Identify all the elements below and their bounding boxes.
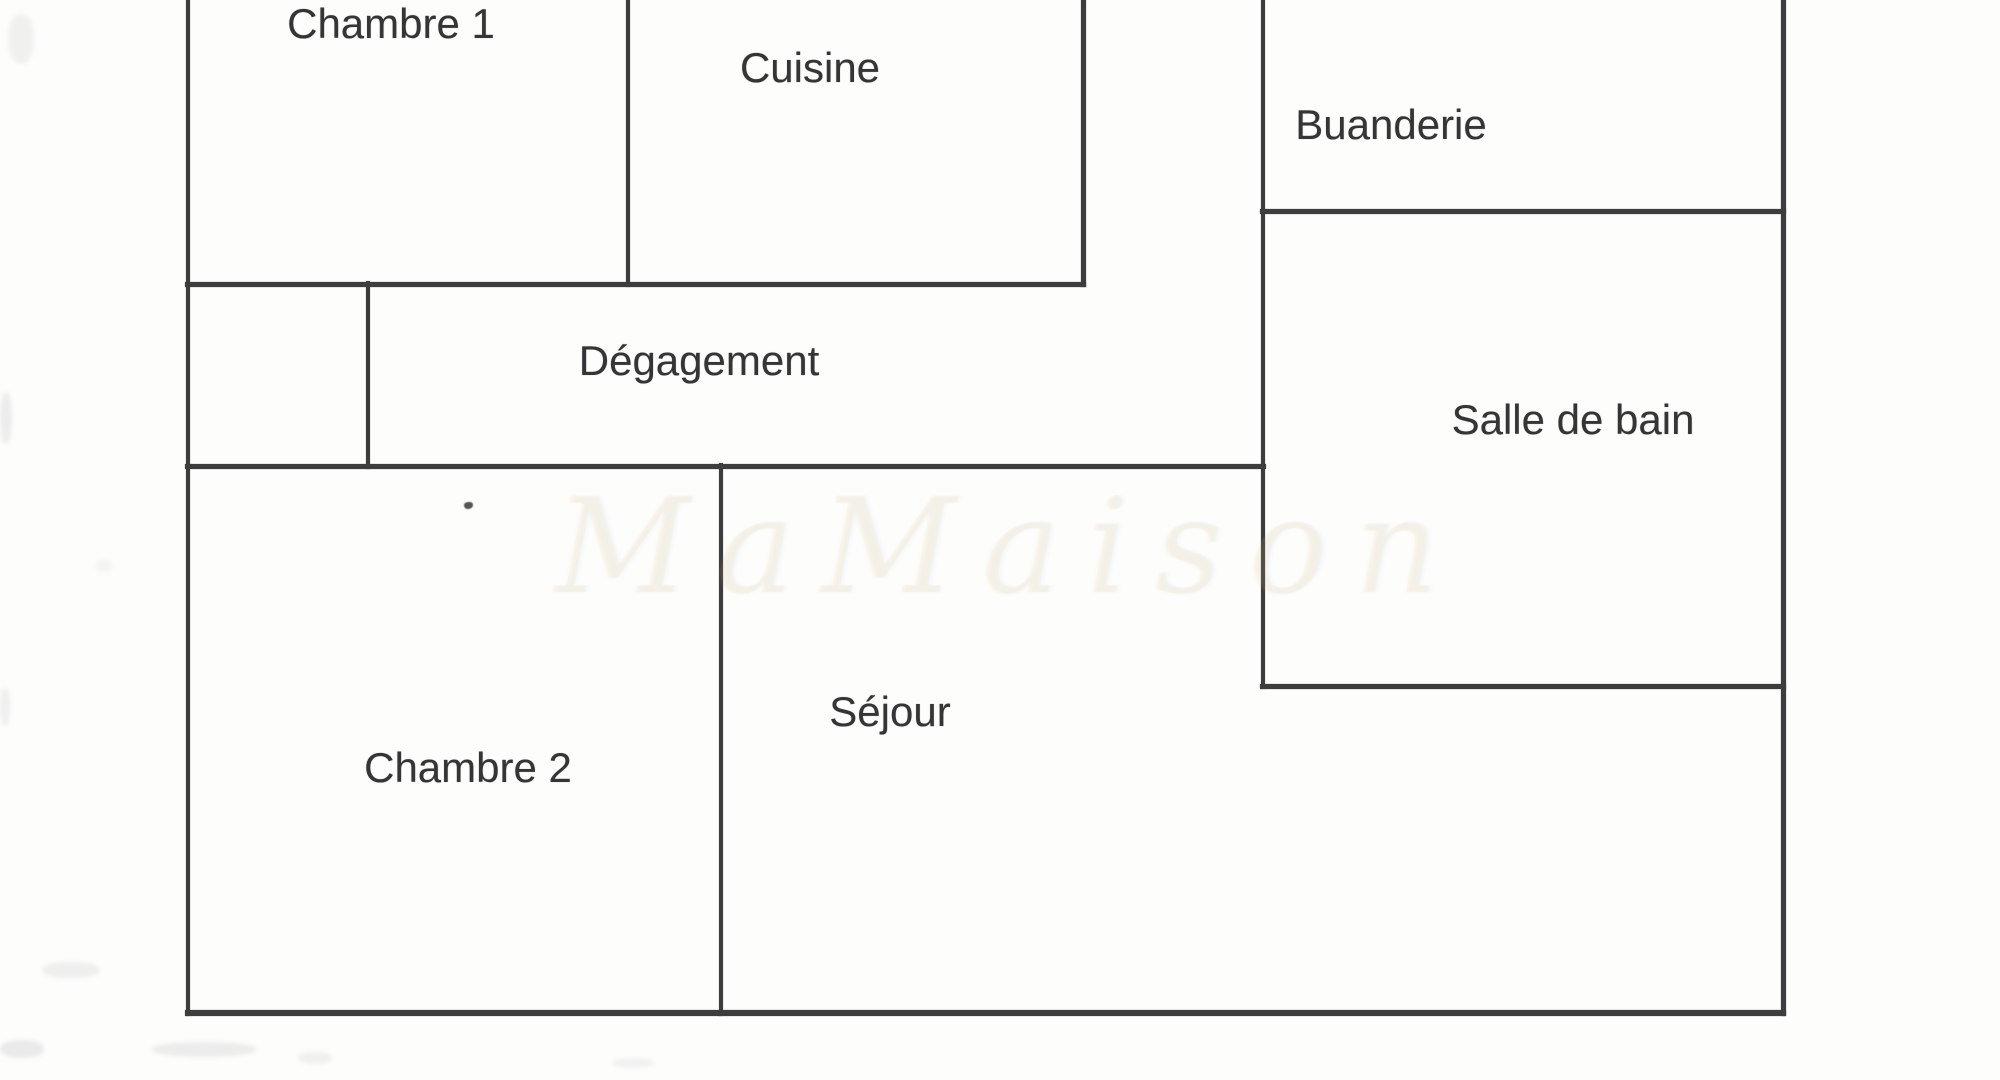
scan-smudge [152, 1042, 256, 1057]
wall-outer-right [1781, 0, 1786, 1016]
room-label-sejour: Séjour [829, 688, 950, 736]
scan-smudge [0, 1040, 44, 1058]
room-label-degagement: Dégagement [579, 337, 820, 385]
wall-chambre1-cuisine [626, 0, 630, 287]
wall-cuisine-right [1081, 0, 1086, 287]
room-label-salle-de-bain: Salle de bain [1452, 396, 1695, 444]
watermark-text: MaMaison [555, 462, 1515, 632]
wall-chambre2-sejour [719, 463, 723, 1016]
wall-salle-de-bain-bottom [1260, 684, 1786, 689]
scan-smudge [612, 1058, 654, 1068]
wall-buanderie-sdb-left [1261, 0, 1265, 689]
floor-plan: Chambre 1CuisineBuanderieDégagementSalle… [0, 0, 2000, 1080]
scan-speck [464, 502, 473, 509]
room-label-cuisine: Cuisine [740, 44, 880, 92]
wall-outer-left [186, 0, 190, 1016]
wall-degagement-bottom [185, 464, 1266, 469]
room-label-buanderie: Buanderie [1295, 101, 1486, 149]
scan-smudge [42, 962, 100, 978]
room-label-chambre-1: Chambre 1 [287, 0, 495, 48]
scan-smudge [0, 688, 10, 726]
scan-smudge [96, 560, 112, 572]
wall-placard-right [366, 281, 370, 469]
wall-plan-bottom [185, 1010, 1786, 1016]
scan-smudge [298, 1052, 332, 1064]
wall-buanderie-bottom [1260, 209, 1786, 214]
wall-chambre1-cuisine-bottom [185, 282, 1086, 287]
scan-smudge [0, 392, 12, 444]
scan-smudge [8, 14, 34, 64]
room-label-chambre-2: Chambre 2 [364, 744, 572, 792]
